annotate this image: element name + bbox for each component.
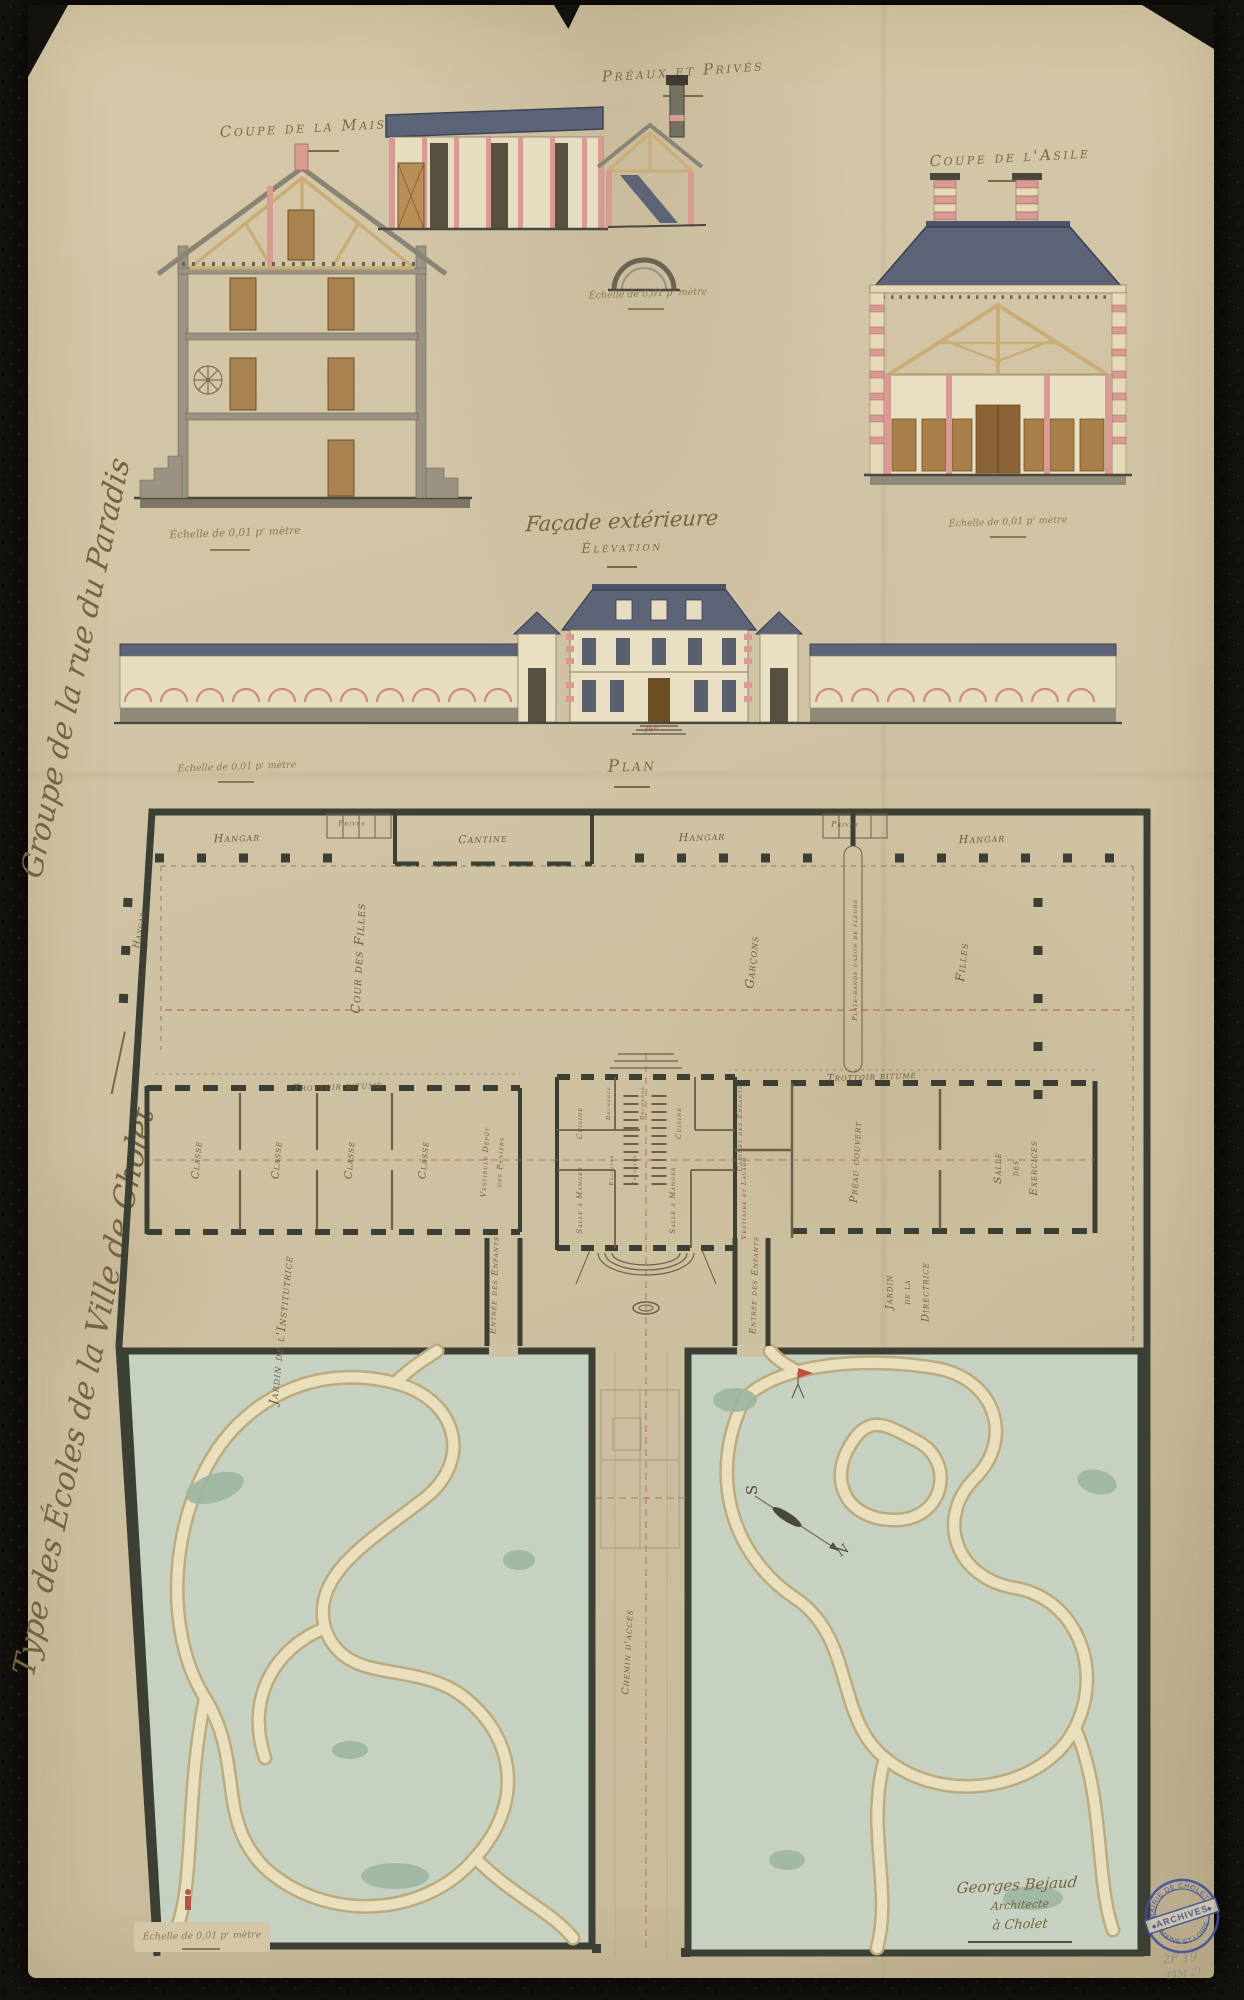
ground-band	[140, 498, 470, 508]
facade-dimension: 36ᵐ	[643, 725, 658, 734]
cornice	[870, 285, 1126, 293]
room-decharge-right: Décharge	[640, 1086, 646, 1120]
room-hangar-3: Hangar	[959, 832, 1006, 847]
compass-south-label: S	[743, 1485, 761, 1495]
plan-drawing	[95, 798, 1165, 1988]
trottoir-dashes	[155, 1070, 1095, 1074]
garden-gate-right	[737, 1344, 766, 1357]
room-vestiaire: Vestiaire et Lavabo	[740, 1157, 748, 1240]
room-prives-1: Privés	[338, 819, 365, 828]
room-salle-exercices-l2: des	[1012, 1160, 1021, 1176]
mansard-roof	[876, 227, 1120, 285]
room-salle-manger-left: Salle à Manger	[576, 1166, 584, 1233]
shed-roof	[386, 107, 603, 137]
spiral-stair	[194, 366, 222, 394]
entrance-corridors	[487, 1238, 768, 1346]
preaux-drawing	[368, 75, 713, 310]
left-wall	[120, 644, 518, 722]
gate-pavilion-left	[514, 612, 560, 722]
hangar-posts	[122, 858, 1135, 1103]
room-salle-exercices-l1: Salle	[992, 1152, 1004, 1184]
jardin-directrice-l2: de la	[903, 1279, 913, 1304]
room-cuisine-right: Cuisine	[675, 1107, 683, 1139]
plan-scale-underline	[182, 1948, 220, 1950]
jardin-directrice-l1: Jardin	[885, 1275, 896, 1310]
facade-scale-underline	[218, 781, 254, 783]
scanned-architectural-drawing: { "margin_titles": { "project_title": "T…	[0, 0, 1244, 2000]
plate-bande-label: Plate-bande gazon de fleurs	[851, 899, 859, 1021]
courtyard-dashes	[161, 866, 1133, 1343]
side-wall-profile	[426, 468, 458, 498]
room-cuisine-left: Cuisine	[576, 1107, 584, 1139]
right-wing	[735, 1081, 1095, 1238]
right-wall	[810, 644, 1116, 722]
asile-drawing	[848, 165, 1148, 515]
room-salle-manger-right: Salle à Manger	[669, 1166, 677, 1233]
exterior-steps	[140, 456, 182, 498]
base	[870, 475, 1126, 485]
room-hangar-1: Hangar	[214, 831, 261, 846]
banded-chimneys	[930, 173, 1042, 227]
privy-vault-section	[608, 260, 680, 290]
pencil-note-line2: (4M 2)	[1167, 1967, 1202, 1981]
chimney	[666, 75, 688, 137]
plan-title: Plan	[607, 755, 656, 777]
gate-pavilion-right	[756, 612, 802, 722]
plan-scale-note: Échelle de 0,01 pʳ mètre	[143, 1929, 262, 1942]
doors	[230, 210, 354, 496]
facade-drawing	[100, 560, 1135, 760]
room-prives-2: Privés	[831, 820, 858, 829]
room-cantine: Cantine	[458, 832, 508, 847]
signature-underline	[968, 1941, 1072, 1943]
preaux-scale-underline	[628, 308, 664, 310]
elevation-subtitle: Élévation	[581, 539, 663, 557]
asile-scale-underline	[990, 536, 1026, 538]
room-salle-exercices-l3: Exercices	[1028, 1140, 1040, 1195]
central-house	[562, 584, 756, 734]
room-decharge-left: Décharge	[606, 1086, 612, 1120]
room-hangar-2: Hangar	[679, 830, 726, 845]
jardin-directrice-l3: Directrice	[921, 1262, 932, 1322]
garden-gate-left	[489, 1344, 518, 1357]
garden-pump	[185, 1889, 191, 1910]
room-escalier-right: Escalier	[632, 1155, 638, 1186]
annex-gable	[598, 125, 702, 227]
architect-signature-place: à Cholet	[992, 1917, 1049, 1934]
interior-truss	[888, 305, 1108, 375]
wooden-gate	[398, 163, 424, 229]
plan-title-underline	[614, 786, 650, 788]
room-escalier-left: Escalier	[609, 1155, 615, 1186]
maison-scale-underline	[210, 549, 250, 551]
